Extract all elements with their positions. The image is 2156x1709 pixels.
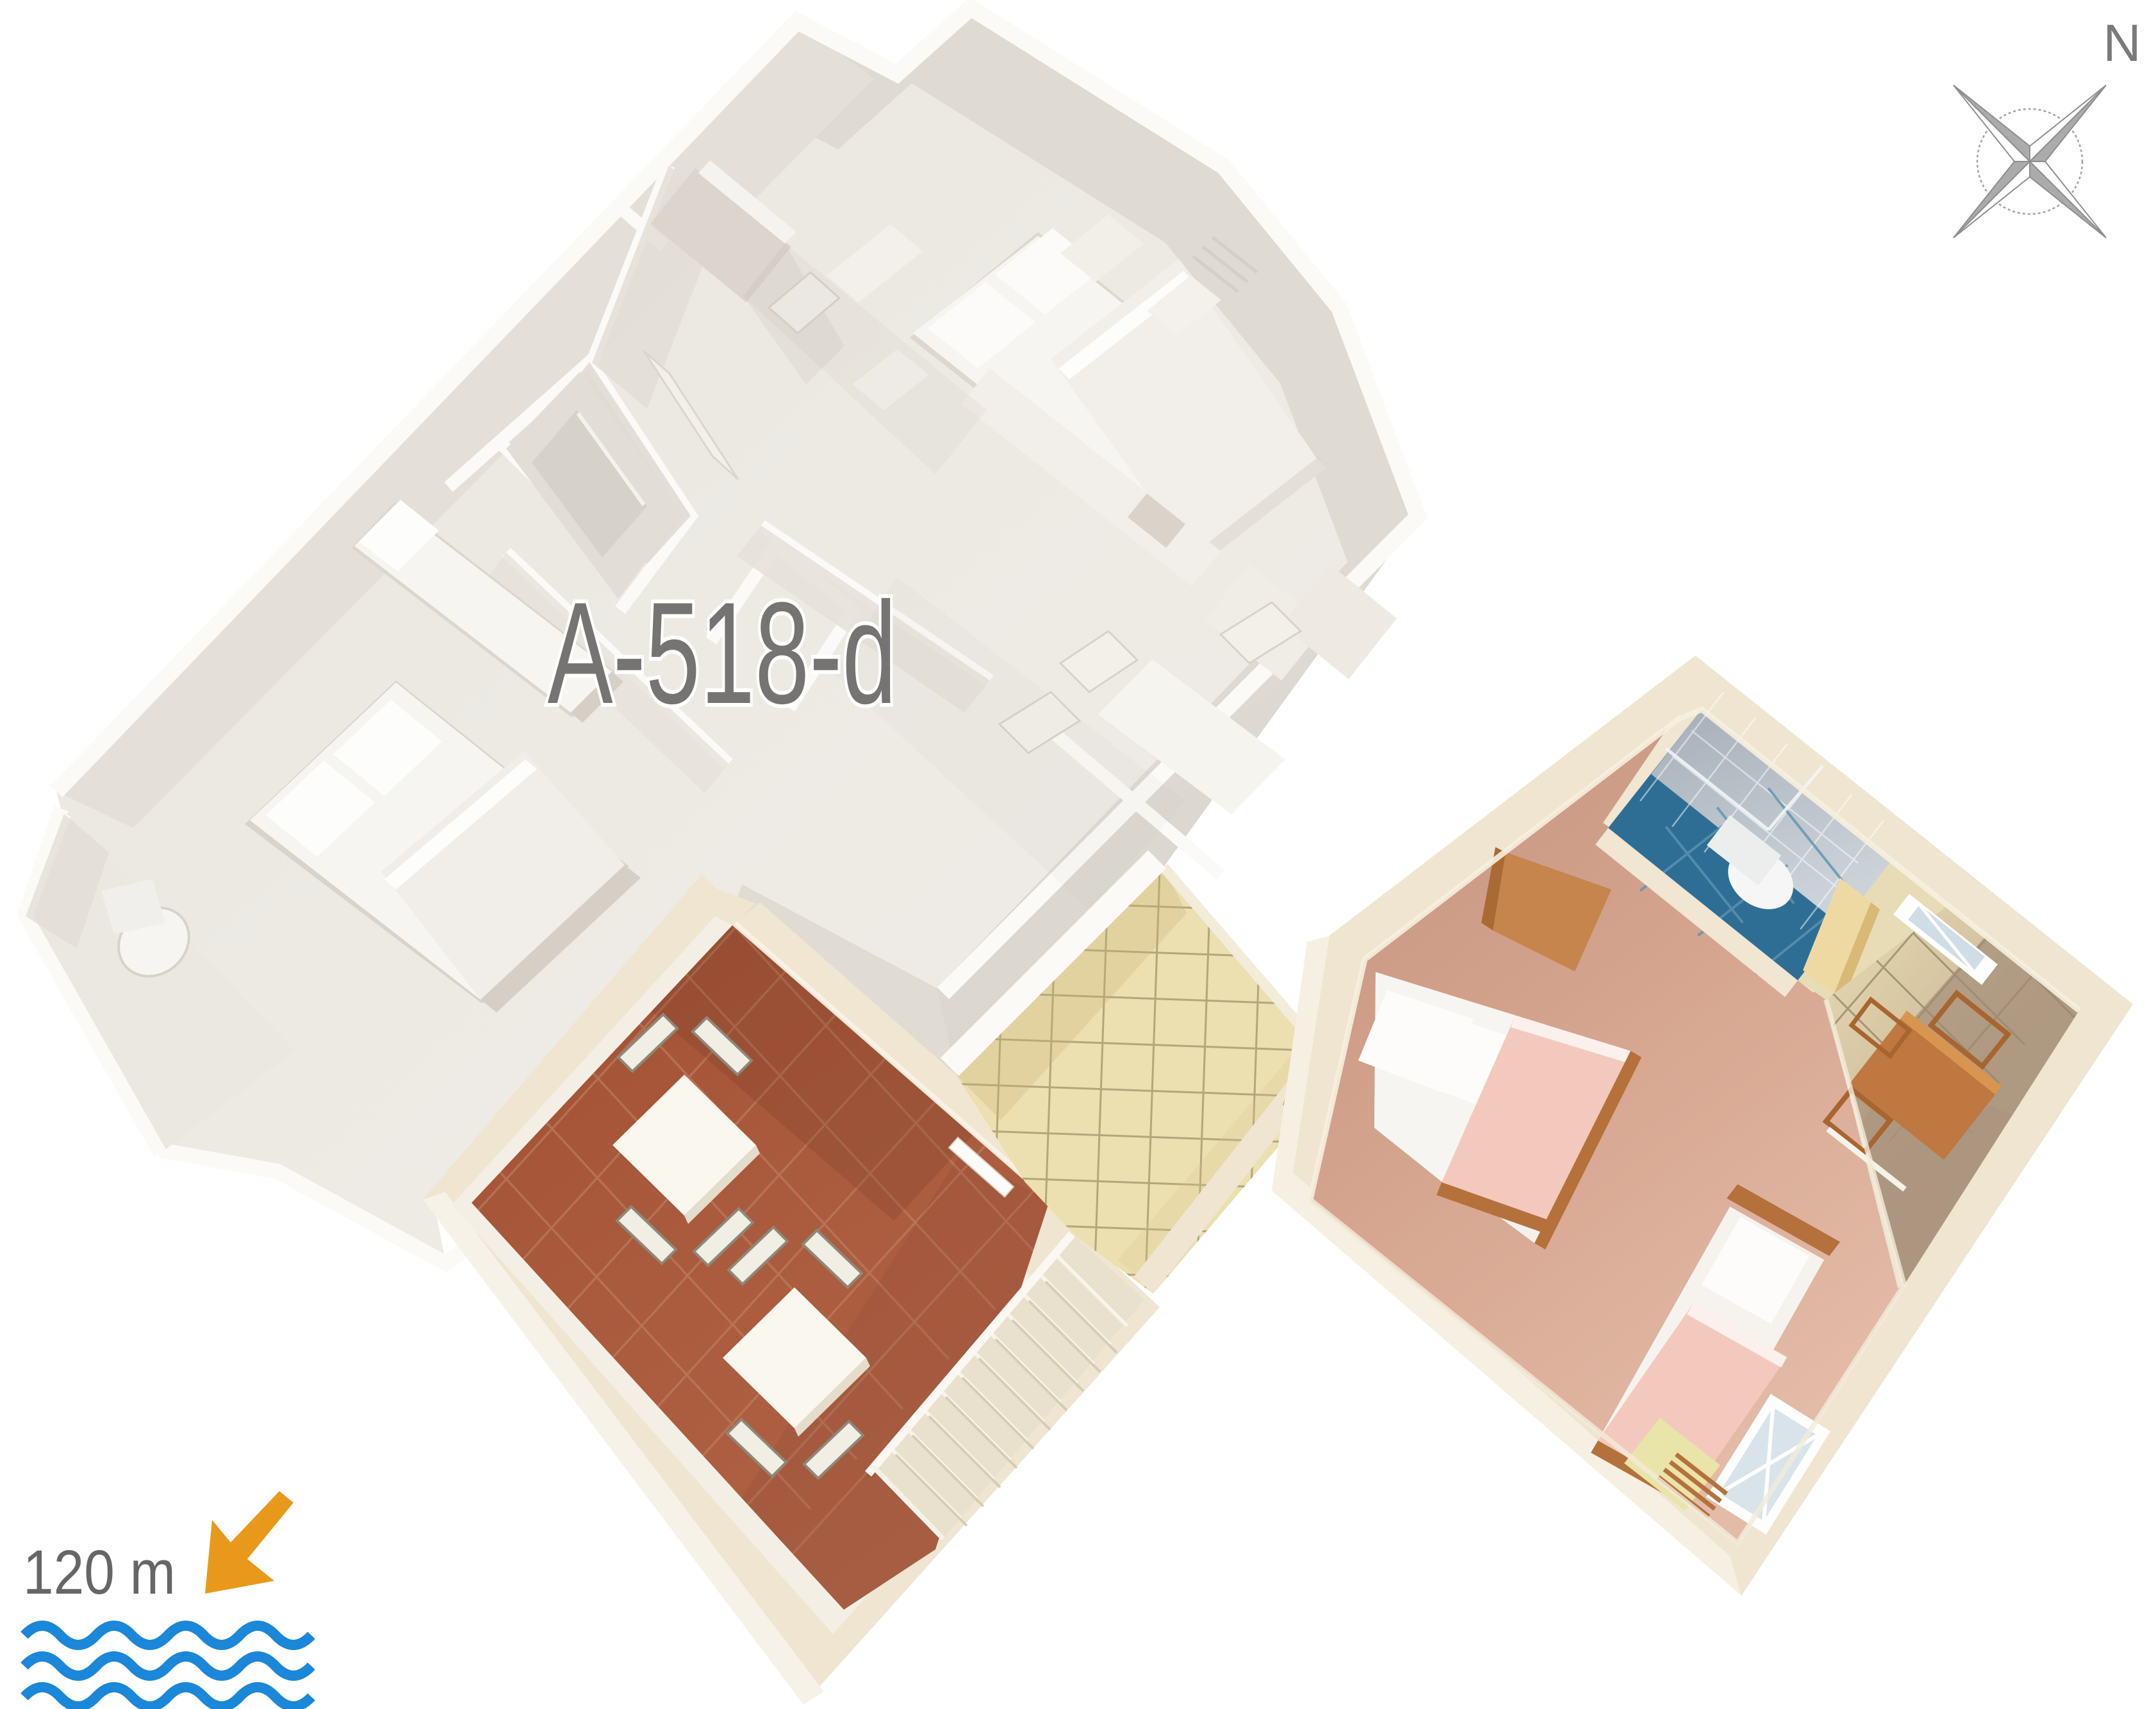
svg-text:A-518-d: A-518-d: [548, 572, 897, 734]
svg-text:N: N: [2103, 14, 2141, 72]
svg-text:120 m: 120 m: [23, 1537, 176, 1607]
